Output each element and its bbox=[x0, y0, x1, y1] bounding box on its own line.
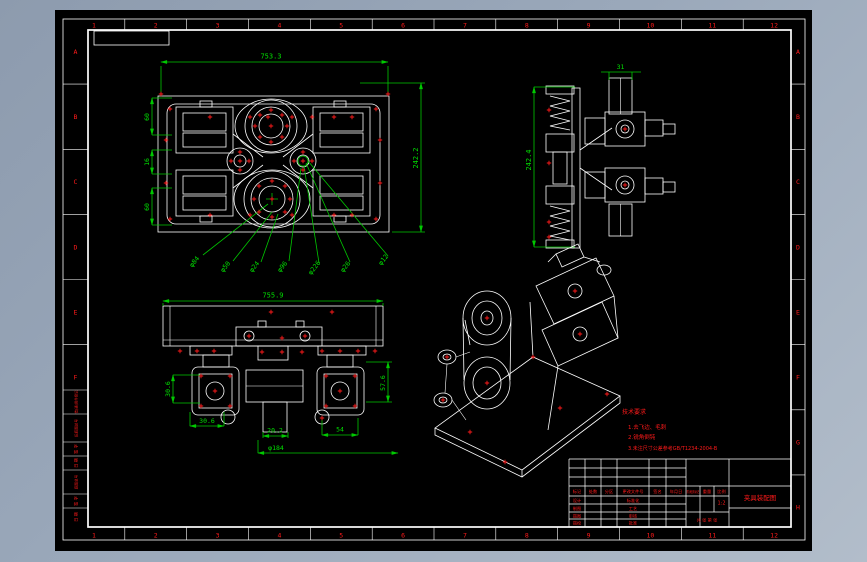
zone-left-E: E bbox=[74, 309, 78, 317]
zone-right-H: H bbox=[796, 504, 800, 512]
notes-title[interactable]: 技术要求 bbox=[622, 408, 646, 416]
zone-top-12: 12 bbox=[770, 22, 778, 30]
tb-draft: 制图 bbox=[573, 505, 581, 512]
zone-left-B: B bbox=[74, 113, 78, 121]
dim-front-center[interactable]: 20.2 bbox=[267, 427, 283, 435]
zone-right-A: A bbox=[796, 48, 800, 56]
tb-standardize: 标准化 bbox=[627, 497, 640, 504]
tb-process: 工艺 bbox=[629, 506, 637, 511]
zone-bottom-8: 8 bbox=[525, 532, 529, 540]
dim-front-side[interactable]: 57.6 bbox=[379, 375, 387, 391]
tb-weight-label: 重量 bbox=[703, 488, 711, 495]
zone-bottom-1: 1 bbox=[92, 532, 96, 540]
notes-item-2[interactable]: 2.锐角倒钝 bbox=[628, 433, 656, 441]
zone-bottom-2: 2 bbox=[154, 532, 158, 540]
tb-header-date: 年月日 bbox=[670, 488, 683, 495]
zone-right-B: B bbox=[796, 113, 800, 121]
tb-design: 设计 bbox=[573, 497, 581, 504]
zone-bottom-5: 5 bbox=[339, 532, 343, 540]
drawing-paper bbox=[55, 10, 812, 551]
tb-scale-value: 1:2 bbox=[717, 501, 725, 507]
tb-approve: 批准 bbox=[629, 520, 637, 527]
tb-header-docno: 更改文件号 bbox=[623, 488, 644, 495]
cad-application-canvas: 1 2 3 4 5 6 7 8 9 10 11 12 1 2 3 4 5 6 7… bbox=[0, 0, 867, 562]
zone-top-9: 9 bbox=[587, 22, 591, 30]
zone-bottom-6: 6 bbox=[401, 532, 405, 540]
zone-top-3: 3 bbox=[216, 22, 220, 30]
dim-front-bottom[interactable]: 30.6 bbox=[199, 417, 215, 425]
tb-scale-label: 比例 bbox=[717, 488, 725, 495]
zone-bottom-12: 12 bbox=[770, 532, 778, 540]
margin-cell-5: 底图总号 bbox=[74, 474, 79, 489]
dim-side-width[interactable]: 31 bbox=[617, 63, 625, 71]
tb-drawing-name: 夹具装配图 bbox=[744, 493, 777, 502]
cad-drawing-canvas: 1 2 3 4 5 6 7 8 9 10 11 12 1 2 3 4 5 6 7… bbox=[0, 0, 867, 562]
zone-bottom-3: 3 bbox=[216, 532, 220, 540]
dim-front-width[interactable]: 755.9 bbox=[262, 292, 283, 300]
zone-bottom-4: 4 bbox=[277, 532, 281, 540]
dim-front-left[interactable]: 30.6 bbox=[164, 381, 172, 397]
zone-right-G: G bbox=[796, 439, 800, 447]
zone-top-5: 5 bbox=[339, 22, 343, 30]
notes-item-1[interactable]: 1.去飞边、毛刺 bbox=[628, 423, 667, 431]
dim-plan-left-3[interactable]: 60 bbox=[143, 203, 151, 211]
notes-item-3[interactable]: 3.未注尺寸公差参考GB/T1234-2004-B bbox=[628, 445, 718, 452]
zone-right-E: E bbox=[796, 309, 800, 317]
tb-stage-label: 阶段标记 bbox=[687, 489, 701, 494]
dim-side-height[interactable]: 242.4 bbox=[525, 149, 533, 170]
zone-left-C: C bbox=[74, 178, 78, 186]
tb-sheet-info: 共 张 第 张 bbox=[697, 517, 719, 524]
zone-left-D: D bbox=[74, 244, 78, 252]
zone-right-D: D bbox=[796, 244, 800, 252]
dim-plan-left-1[interactable]: 60 bbox=[143, 113, 151, 121]
tb-trace: 描图 bbox=[573, 513, 581, 520]
zone-left-F: F bbox=[74, 374, 78, 382]
zone-top-4: 4 bbox=[277, 22, 281, 30]
zone-top-2: 2 bbox=[154, 22, 158, 30]
tb-header-zone: 分区 bbox=[605, 488, 613, 495]
zone-bottom-7: 7 bbox=[463, 532, 467, 540]
zone-bottom-9: 9 bbox=[587, 532, 591, 540]
margin-cell-3: 签 字 bbox=[73, 444, 79, 454]
margin-cell-1: 借(通)用件登记 bbox=[74, 390, 79, 414]
margin-cell-6: 签 字 bbox=[73, 496, 79, 506]
tb-header-count: 处数 bbox=[589, 488, 598, 495]
zone-right-F: F bbox=[796, 374, 800, 382]
margin-cell-2: 旧底图总号 bbox=[74, 419, 79, 437]
tb-check-trace: 描校 bbox=[573, 520, 582, 527]
dim-plan-left-2[interactable]: 16 bbox=[143, 158, 151, 166]
zone-bottom-10: 10 bbox=[646, 532, 654, 540]
tb-header-sign: 签名 bbox=[653, 488, 661, 495]
zone-top-1: 1 bbox=[92, 22, 96, 30]
zone-top-11: 11 bbox=[708, 22, 716, 30]
zone-top-8: 8 bbox=[525, 22, 529, 30]
zone-left-A: A bbox=[74, 48, 78, 56]
tb-header-mark: 标记 bbox=[573, 488, 582, 495]
zone-top-7: 7 bbox=[463, 22, 467, 30]
dim-plan-width[interactable]: 753.3 bbox=[260, 53, 281, 61]
zone-right-C: C bbox=[796, 178, 800, 186]
zone-bottom-11: 11 bbox=[708, 532, 716, 540]
dim-front-right[interactable]: 54 bbox=[336, 426, 344, 434]
dim-plan-height[interactable]: 242.2 bbox=[412, 147, 420, 168]
dim-front-diameter[interactable]: φ184 bbox=[268, 444, 284, 452]
tb-review: 审核 bbox=[629, 513, 638, 520]
zone-top-10: 10 bbox=[646, 22, 654, 30]
zone-top-6: 6 bbox=[401, 22, 405, 30]
